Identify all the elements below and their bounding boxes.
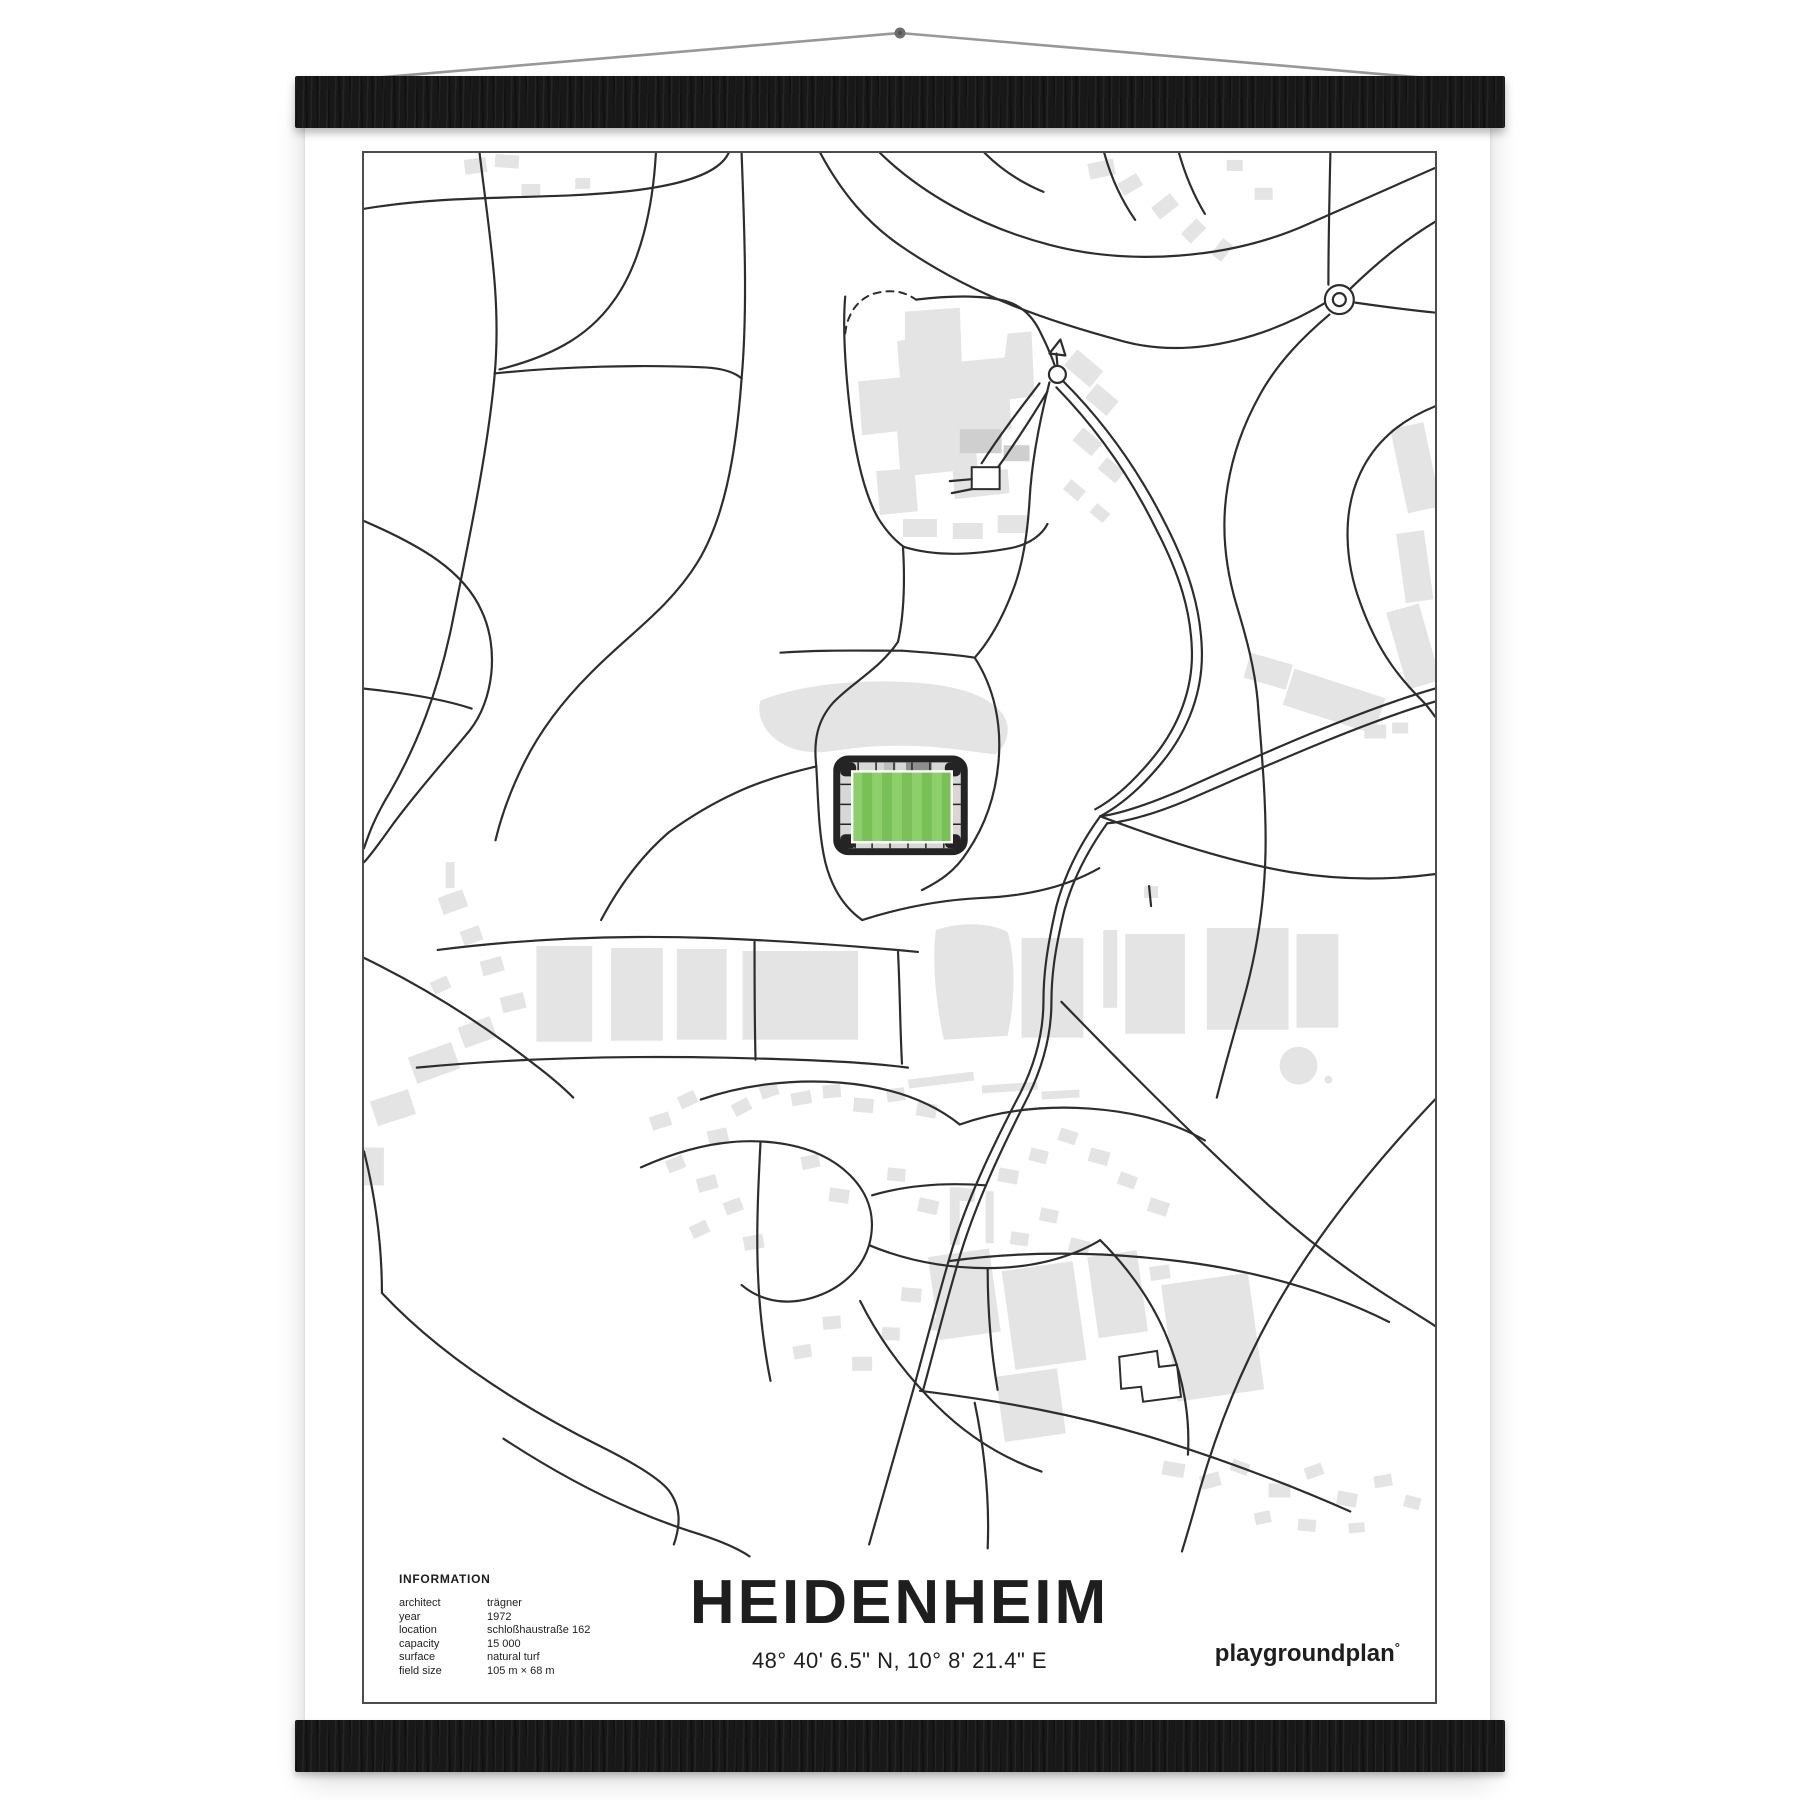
map-frame (362, 151, 1437, 1704)
nail-center-dot (898, 31, 902, 35)
hanger-nail-icon (895, 28, 906, 39)
brand-logo: playgroundplan° (362, 1640, 1400, 1668)
roundabout-large-icon (1325, 285, 1354, 314)
stadium-pitch (852, 771, 952, 842)
city-map (364, 153, 1435, 1702)
stadium-icon (833, 755, 967, 855)
roundabout-small-icon (1049, 340, 1066, 383)
poster-title: HEIDENHEIM (362, 1572, 1437, 1634)
top-hanger-rail (295, 76, 1505, 128)
brand-name: playgroundplan (1215, 1640, 1395, 1667)
bottom-hanger-rail (295, 1720, 1505, 1772)
brand-degree-mark: ° (1395, 1640, 1400, 1655)
poster-photo-scene: INFORMATION architect trägner year 1972 … (0, 0, 1800, 1800)
